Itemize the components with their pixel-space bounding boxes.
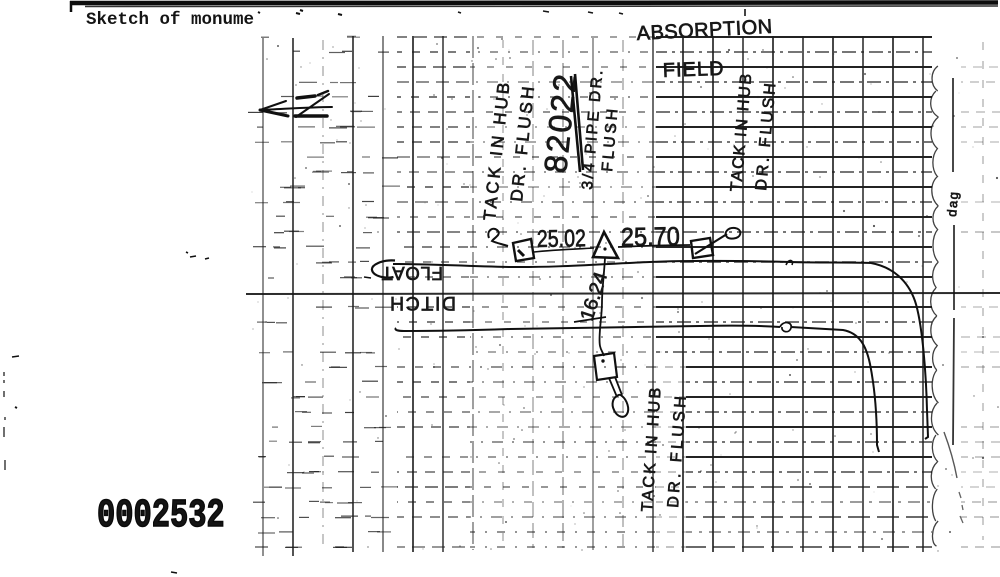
svg-text:TACK IN HUB: TACK IN HUB — [728, 71, 755, 192]
svg-text:DITCH: DITCH — [388, 292, 456, 314]
svg-text:DR. FLUSH: DR. FLUSH — [665, 392, 690, 508]
svg-text:FIELD: FIELD — [662, 58, 724, 82]
svg-text:TACK IN HUB: TACK IN HUB — [639, 385, 665, 512]
svg-text:Sketch of monume: Sketch of monume — [86, 10, 254, 30]
svg-text:ABSORPTION: ABSORPTION — [636, 16, 773, 45]
svg-text:0002532: 0002532 — [97, 492, 225, 538]
svg-text:FLOAT: FLOAT — [381, 263, 443, 284]
svg-text:16.24: 16.24 — [577, 269, 613, 323]
svg-text:dag: dag — [944, 190, 961, 217]
